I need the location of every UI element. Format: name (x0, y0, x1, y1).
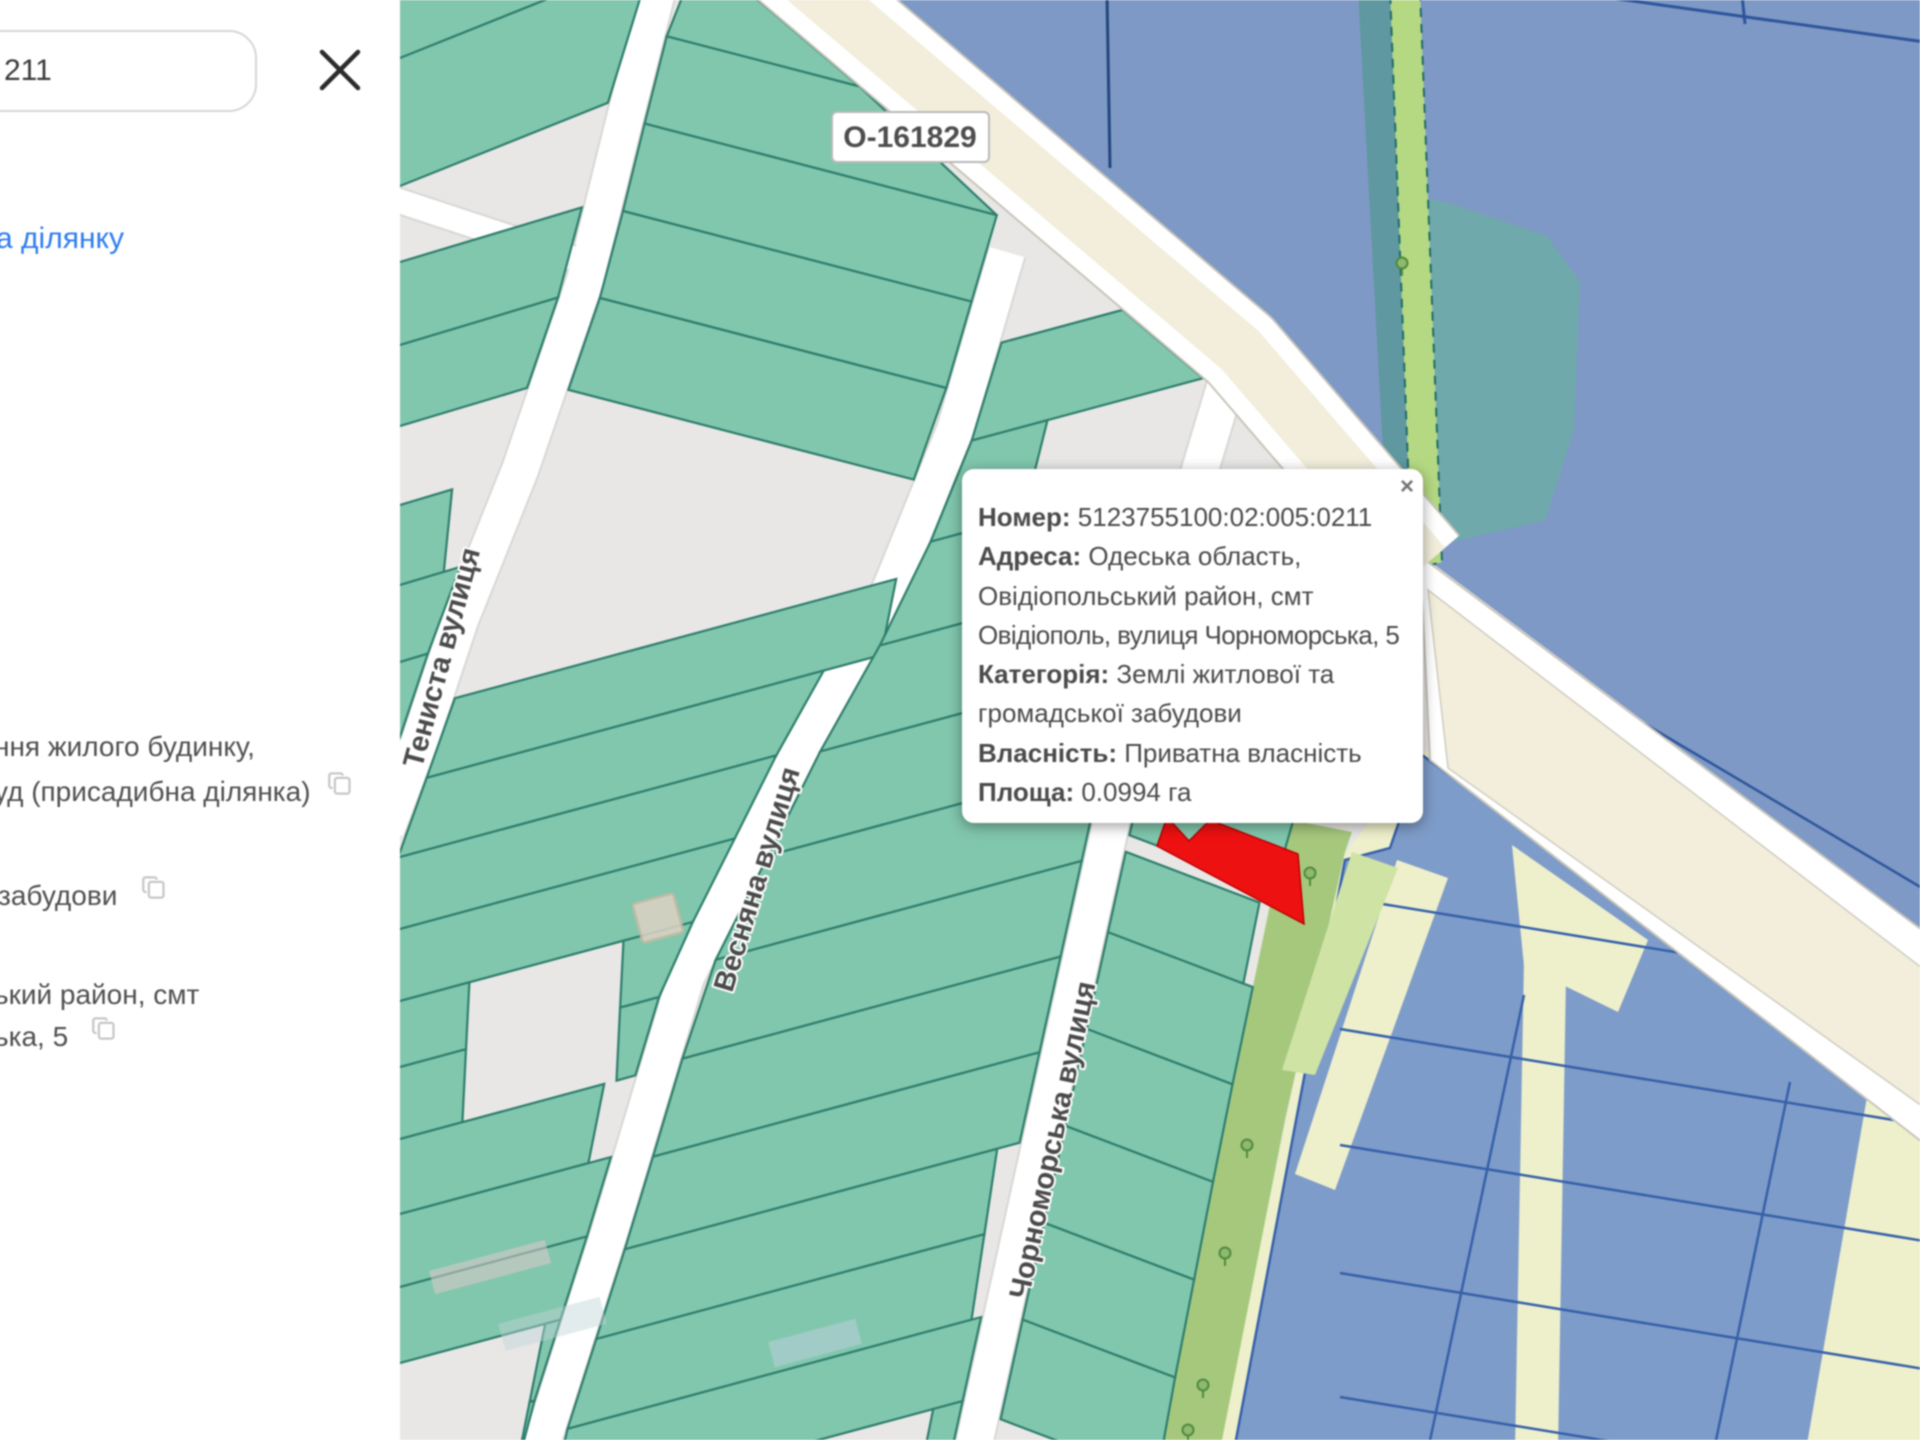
svg-text:О-161829: О-161829 (843, 121, 976, 154)
